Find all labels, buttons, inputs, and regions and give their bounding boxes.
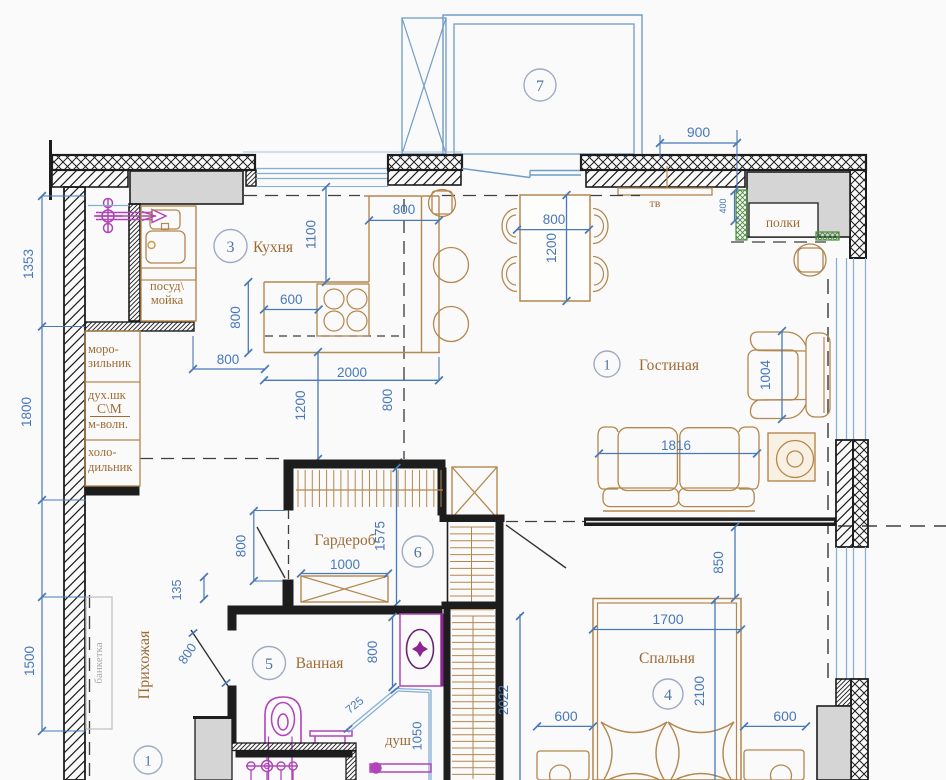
svg-text:моро-: моро- <box>88 342 119 356</box>
svg-text:1500: 1500 <box>22 646 37 676</box>
svg-text:1800: 1800 <box>19 397 34 427</box>
svg-text:5: 5 <box>265 656 273 673</box>
svg-text:800: 800 <box>543 212 566 227</box>
svg-text:тв: тв <box>650 196 661 210</box>
svg-text:400: 400 <box>718 198 728 213</box>
svg-text:банкетка: банкетка <box>93 642 105 683</box>
svg-text:2022: 2022 <box>496 685 511 715</box>
svg-text:1: 1 <box>144 754 152 770</box>
svg-text:м-волн.: м-волн. <box>88 417 128 431</box>
svg-text:2100: 2100 <box>692 676 707 706</box>
svg-text:6: 6 <box>414 545 422 562</box>
svg-text:посуд\: посуд\ <box>150 279 184 293</box>
svg-text:1700: 1700 <box>652 611 683 627</box>
svg-text:Прихожая: Прихожая <box>136 630 153 699</box>
svg-text:850: 850 <box>711 551 726 574</box>
svg-text:1200: 1200 <box>293 390 308 420</box>
svg-text:Ванная: Ванная <box>296 655 344 672</box>
svg-text:1000: 1000 <box>330 557 360 572</box>
svg-text:600: 600 <box>773 708 797 724</box>
svg-text:800: 800 <box>217 352 240 367</box>
svg-text:С\М: С\М <box>97 401 122 416</box>
svg-text:Кухня: Кухня <box>253 239 293 256</box>
svg-text:1004: 1004 <box>758 359 773 390</box>
svg-text:дильник: дильник <box>88 460 133 474</box>
svg-text:полки: полки <box>766 215 800 230</box>
svg-text:холо-: холо- <box>88 445 117 459</box>
svg-text:600: 600 <box>554 708 578 724</box>
svg-text:зильник: зильник <box>88 356 132 370</box>
svg-text:Спальня: Спальня <box>639 650 695 667</box>
svg-text:1816: 1816 <box>661 438 691 453</box>
svg-text:дух.шк: дух.шк <box>88 388 127 402</box>
svg-text:800: 800 <box>234 535 249 558</box>
svg-text:7: 7 <box>536 78 544 95</box>
svg-text:2000: 2000 <box>337 365 367 380</box>
svg-text:1: 1 <box>603 358 611 374</box>
svg-text:Гардероб: Гардероб <box>314 532 375 549</box>
svg-text:1353: 1353 <box>21 249 36 279</box>
svg-text:1200: 1200 <box>544 233 559 263</box>
svg-text:800: 800 <box>380 389 395 412</box>
svg-text:3: 3 <box>227 239 235 256</box>
svg-text:4: 4 <box>664 687 672 704</box>
svg-text:900: 900 <box>687 124 711 140</box>
svg-text:800: 800 <box>393 202 416 217</box>
svg-text:душ: душ <box>385 733 411 749</box>
svg-text:800: 800 <box>228 306 243 329</box>
svg-text:1100: 1100 <box>304 220 319 249</box>
svg-text:800: 800 <box>365 641 380 664</box>
svg-text:Гостиная: Гостиная <box>639 357 699 374</box>
svg-text:135: 135 <box>170 580 184 601</box>
svg-text:1050: 1050 <box>410 722 425 751</box>
svg-text:мойка: мойка <box>151 293 184 307</box>
svg-text:600: 600 <box>280 292 303 307</box>
